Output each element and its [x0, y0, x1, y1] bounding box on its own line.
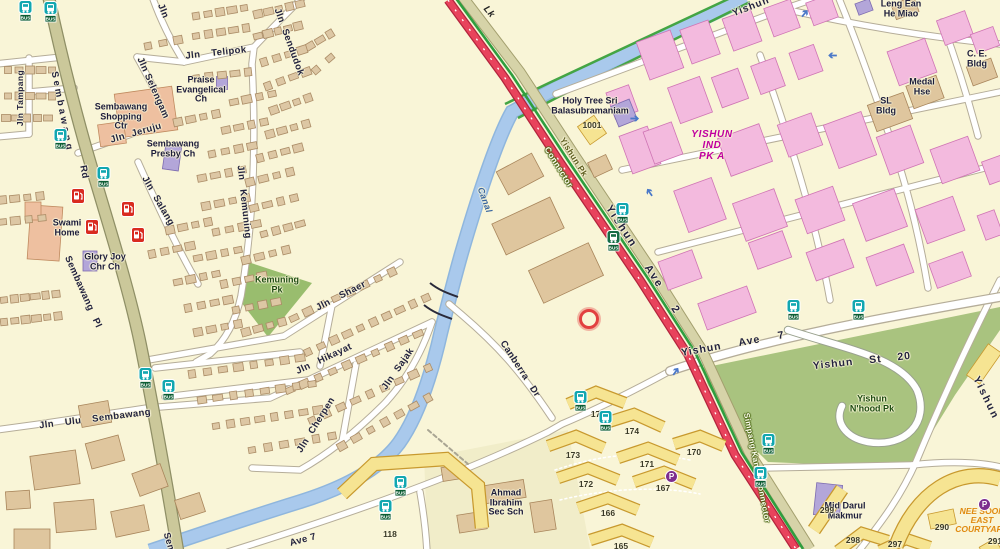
place-label-medal-hse: MedalHse [909, 77, 935, 96]
bus-stop-icon: BUS [573, 390, 588, 417]
building-number-170: 170 [687, 447, 701, 457]
building-number-167: 167 [656, 483, 670, 493]
place-label-line: Hse [909, 87, 935, 97]
bus-stop-icon: BUS [161, 379, 176, 406]
petrol-station-icon [131, 227, 145, 248]
svg-text:BUS: BUS [576, 406, 586, 411]
one-way-arrow-icon: ➔ [630, 112, 639, 125]
building-number-291: 291 [988, 536, 1000, 546]
poi-ring-icon [579, 309, 599, 329]
place-label-line: Bldg [967, 59, 987, 69]
svg-text:BUS: BUS [99, 182, 109, 187]
bus-stop-icon: BUS [43, 1, 58, 28]
place-label-yishun-n-hood-pk: YishunN'hood Pk [850, 394, 894, 413]
one-way-arrow-icon: ➔ [828, 49, 837, 62]
svg-text:BUS: BUS [601, 426, 611, 431]
building-number-290: 290 [935, 522, 949, 532]
svg-text:BUS: BUS [46, 17, 56, 22]
svg-text:BUS: BUS [164, 395, 174, 400]
building-number-172: 172 [579, 479, 593, 489]
place-label-sembawang-shopping-ctr: SembawangShoppingCtr [95, 102, 148, 131]
svg-text:BUS: BUS [56, 144, 66, 149]
place-label-line: COURTYARD [955, 526, 1000, 535]
place-label-line: Presby Ch [147, 149, 200, 159]
bus-stop-icon: BUS [851, 299, 866, 326]
parking-icon: P [978, 498, 991, 511]
place-label-line: Sec Sch [488, 508, 523, 518]
building-number-1001: 1001 [583, 120, 602, 130]
bus-stop-icon: BUS [378, 499, 393, 526]
place-label-sl-bldg: SLBldg [876, 96, 896, 115]
bus-stop-icon: BUS [138, 367, 153, 394]
svg-text:BUS: BUS [21, 16, 31, 21]
road-label-rd: Rd [77, 164, 90, 179]
building-number-298: 298 [846, 535, 860, 545]
place-label-ahmad-ibrahim-sec-sch: AhmadIbrahimSec Sch [488, 488, 523, 517]
place-label-c-e-bldg: C. E.Bldg [967, 49, 987, 68]
building-number-299: 299 [820, 505, 834, 515]
building-number-173: 173 [566, 450, 580, 460]
petrol-station-icon [71, 188, 85, 209]
svg-text:BUS: BUS [396, 491, 406, 496]
place-label-line: Ch [176, 95, 226, 105]
place-label-line: PK A [691, 151, 732, 162]
place-label-line: Home [53, 228, 82, 238]
place-label-sembawang-presby-ch: SembawangPresby Ch [147, 139, 200, 158]
svg-text:BUS: BUS [854, 315, 864, 320]
svg-text:BUS: BUS [618, 218, 628, 223]
place-label-line: He Miao [881, 9, 922, 19]
place-label-leng-ean-he-miao: Leng EanHe Miao [881, 0, 922, 19]
bus-stop-icon: BUS [598, 410, 613, 437]
bus-stop-icon: BUS [606, 230, 621, 257]
bus-stop-icon: BUS [393, 475, 408, 502]
bus-stop-icon: BUS [761, 433, 776, 460]
map-canvas[interactable]: SembawangRdJln TampangJln Ulu SembawangS… [0, 0, 1000, 549]
place-label-line: Balasubramaniam [551, 106, 629, 116]
place-label-glory-joy-chr-ch: Glory JoyChr Ch [84, 252, 126, 271]
place-label-kemuning-pk: KemuningPk [255, 275, 299, 294]
place-label-yishun-ind-pk-a: YISHUNINDPK A [691, 130, 732, 162]
place-label-line: IND [691, 141, 732, 152]
building-number-166: 166 [601, 508, 615, 518]
bus-stop-icon: BUS [753, 466, 768, 493]
building-number-118: 118 [383, 529, 397, 539]
svg-text:BUS: BUS [609, 246, 619, 251]
place-label-holy-tree-sri-balasubramaniam: Holy Tree SriBalasubramaniam [551, 96, 629, 115]
place-label-line: Ctr [95, 122, 148, 132]
petrol-station-icon [121, 201, 135, 222]
bus-stop-icon: BUS [53, 128, 68, 155]
svg-text:BUS: BUS [381, 515, 391, 520]
building-number-297: 297 [888, 539, 902, 549]
svg-text:BUS: BUS [141, 383, 151, 388]
bus-stop-icon: BUS [615, 202, 630, 229]
svg-text:BUS: BUS [756, 482, 766, 487]
place-label-praise-evangelical-ch: PraiseEvangelicalCh [176, 75, 226, 104]
svg-text:BUS: BUS [764, 449, 774, 454]
building-number-171: 171 [640, 459, 654, 469]
building-number-174: 174 [625, 426, 639, 436]
place-label-line: Chr Ch [84, 262, 126, 272]
place-label-line: N'hood Pk [850, 404, 894, 414]
svg-text:BUS: BUS [789, 315, 799, 320]
building-number-165: 165 [614, 541, 628, 549]
place-label-line: Bldg [876, 106, 896, 116]
petrol-station-icon [85, 219, 99, 240]
bus-stop-icon: BUS [96, 166, 111, 193]
place-label-swami-home: SwamiHome [53, 218, 82, 237]
bus-stop-icon: BUS [18, 0, 33, 27]
bus-stop-icon: BUS [786, 299, 801, 326]
parking-icon: P [665, 470, 678, 483]
road-label-jln-tampang: Jln Tampang [15, 70, 25, 126]
place-label-line: Pk [255, 285, 299, 295]
place-label-nee-soon-east-courtyard: NEE SOONEASTCOURTYARD [955, 507, 1000, 535]
